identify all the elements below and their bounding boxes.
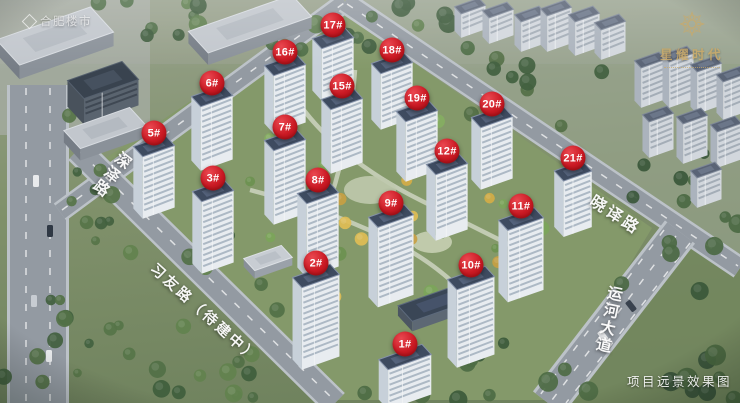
building-marker-18[interactable]: 18# [380, 38, 405, 63]
brand-emblem-icon [679, 11, 705, 37]
building-marker-9[interactable]: 9# [379, 191, 404, 216]
building-marker-10[interactable]: 10# [459, 253, 484, 278]
image-caption: 项目远景效果图 [627, 371, 732, 390]
brand-subtitle-rule [664, 67, 720, 68]
watermark-top-left: 合肥楼市 [24, 13, 92, 29]
building-marker-16[interactable]: 16# [273, 40, 298, 65]
building-marker-20[interactable]: 20# [480, 92, 505, 117]
building-marker-12[interactable]: 12# [435, 139, 460, 164]
building-marker-15[interactable]: 15# [330, 74, 355, 99]
watermark-top-left-text: 合肥楼市 [40, 13, 92, 29]
project-brand: 星耀时代 [660, 11, 724, 68]
aerial-rendering: 深泽路习友路（待建中）晓译路运河大道 1#2#3#5#6#7#8#9#10#11… [0, 0, 740, 403]
site-plan-scene [0, 0, 740, 403]
building-marker-8[interactable]: 8# [306, 168, 331, 193]
building-marker-11[interactable]: 11# [509, 194, 534, 219]
building-marker-1[interactable]: 1# [393, 332, 418, 357]
building-marker-3[interactable]: 3# [201, 166, 226, 191]
building-marker-7[interactable]: 7# [273, 115, 298, 140]
building-marker-2[interactable]: 2# [304, 251, 329, 276]
building-marker-5[interactable]: 5# [142, 121, 167, 146]
building-marker-6[interactable]: 6# [200, 71, 225, 96]
building-marker-17[interactable]: 17# [321, 13, 346, 38]
building-marker-21[interactable]: 21# [561, 146, 586, 171]
diamond-logo-icon [22, 13, 38, 29]
building-marker-19[interactable]: 19# [405, 86, 430, 111]
brand-title: 星耀时代 [660, 44, 724, 63]
